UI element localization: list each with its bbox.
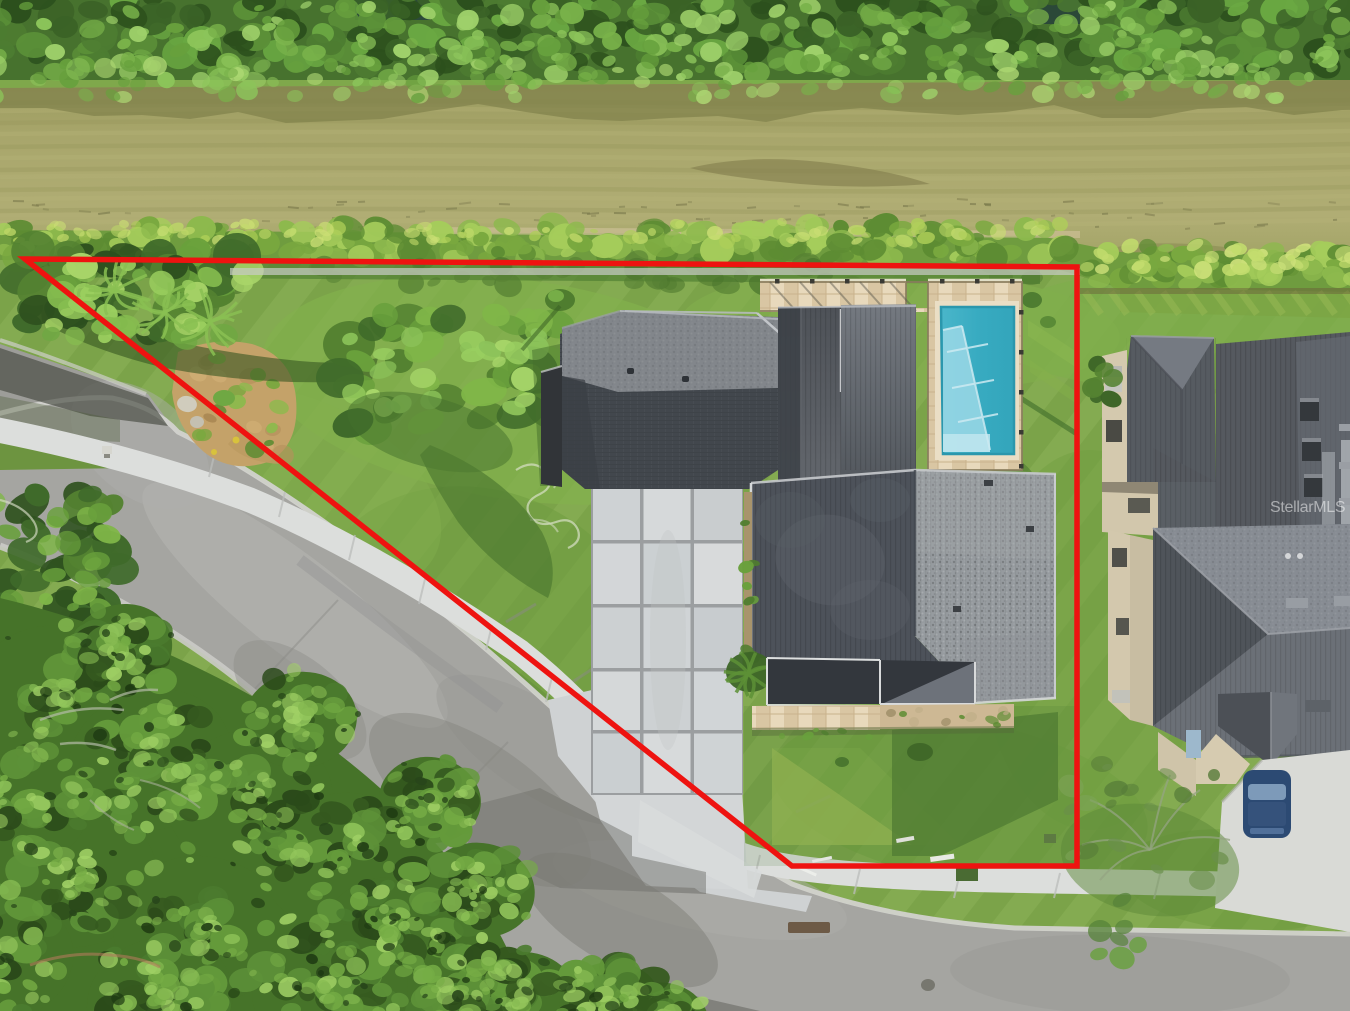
svg-text:StellarMLS: StellarMLS [1270,499,1345,516]
